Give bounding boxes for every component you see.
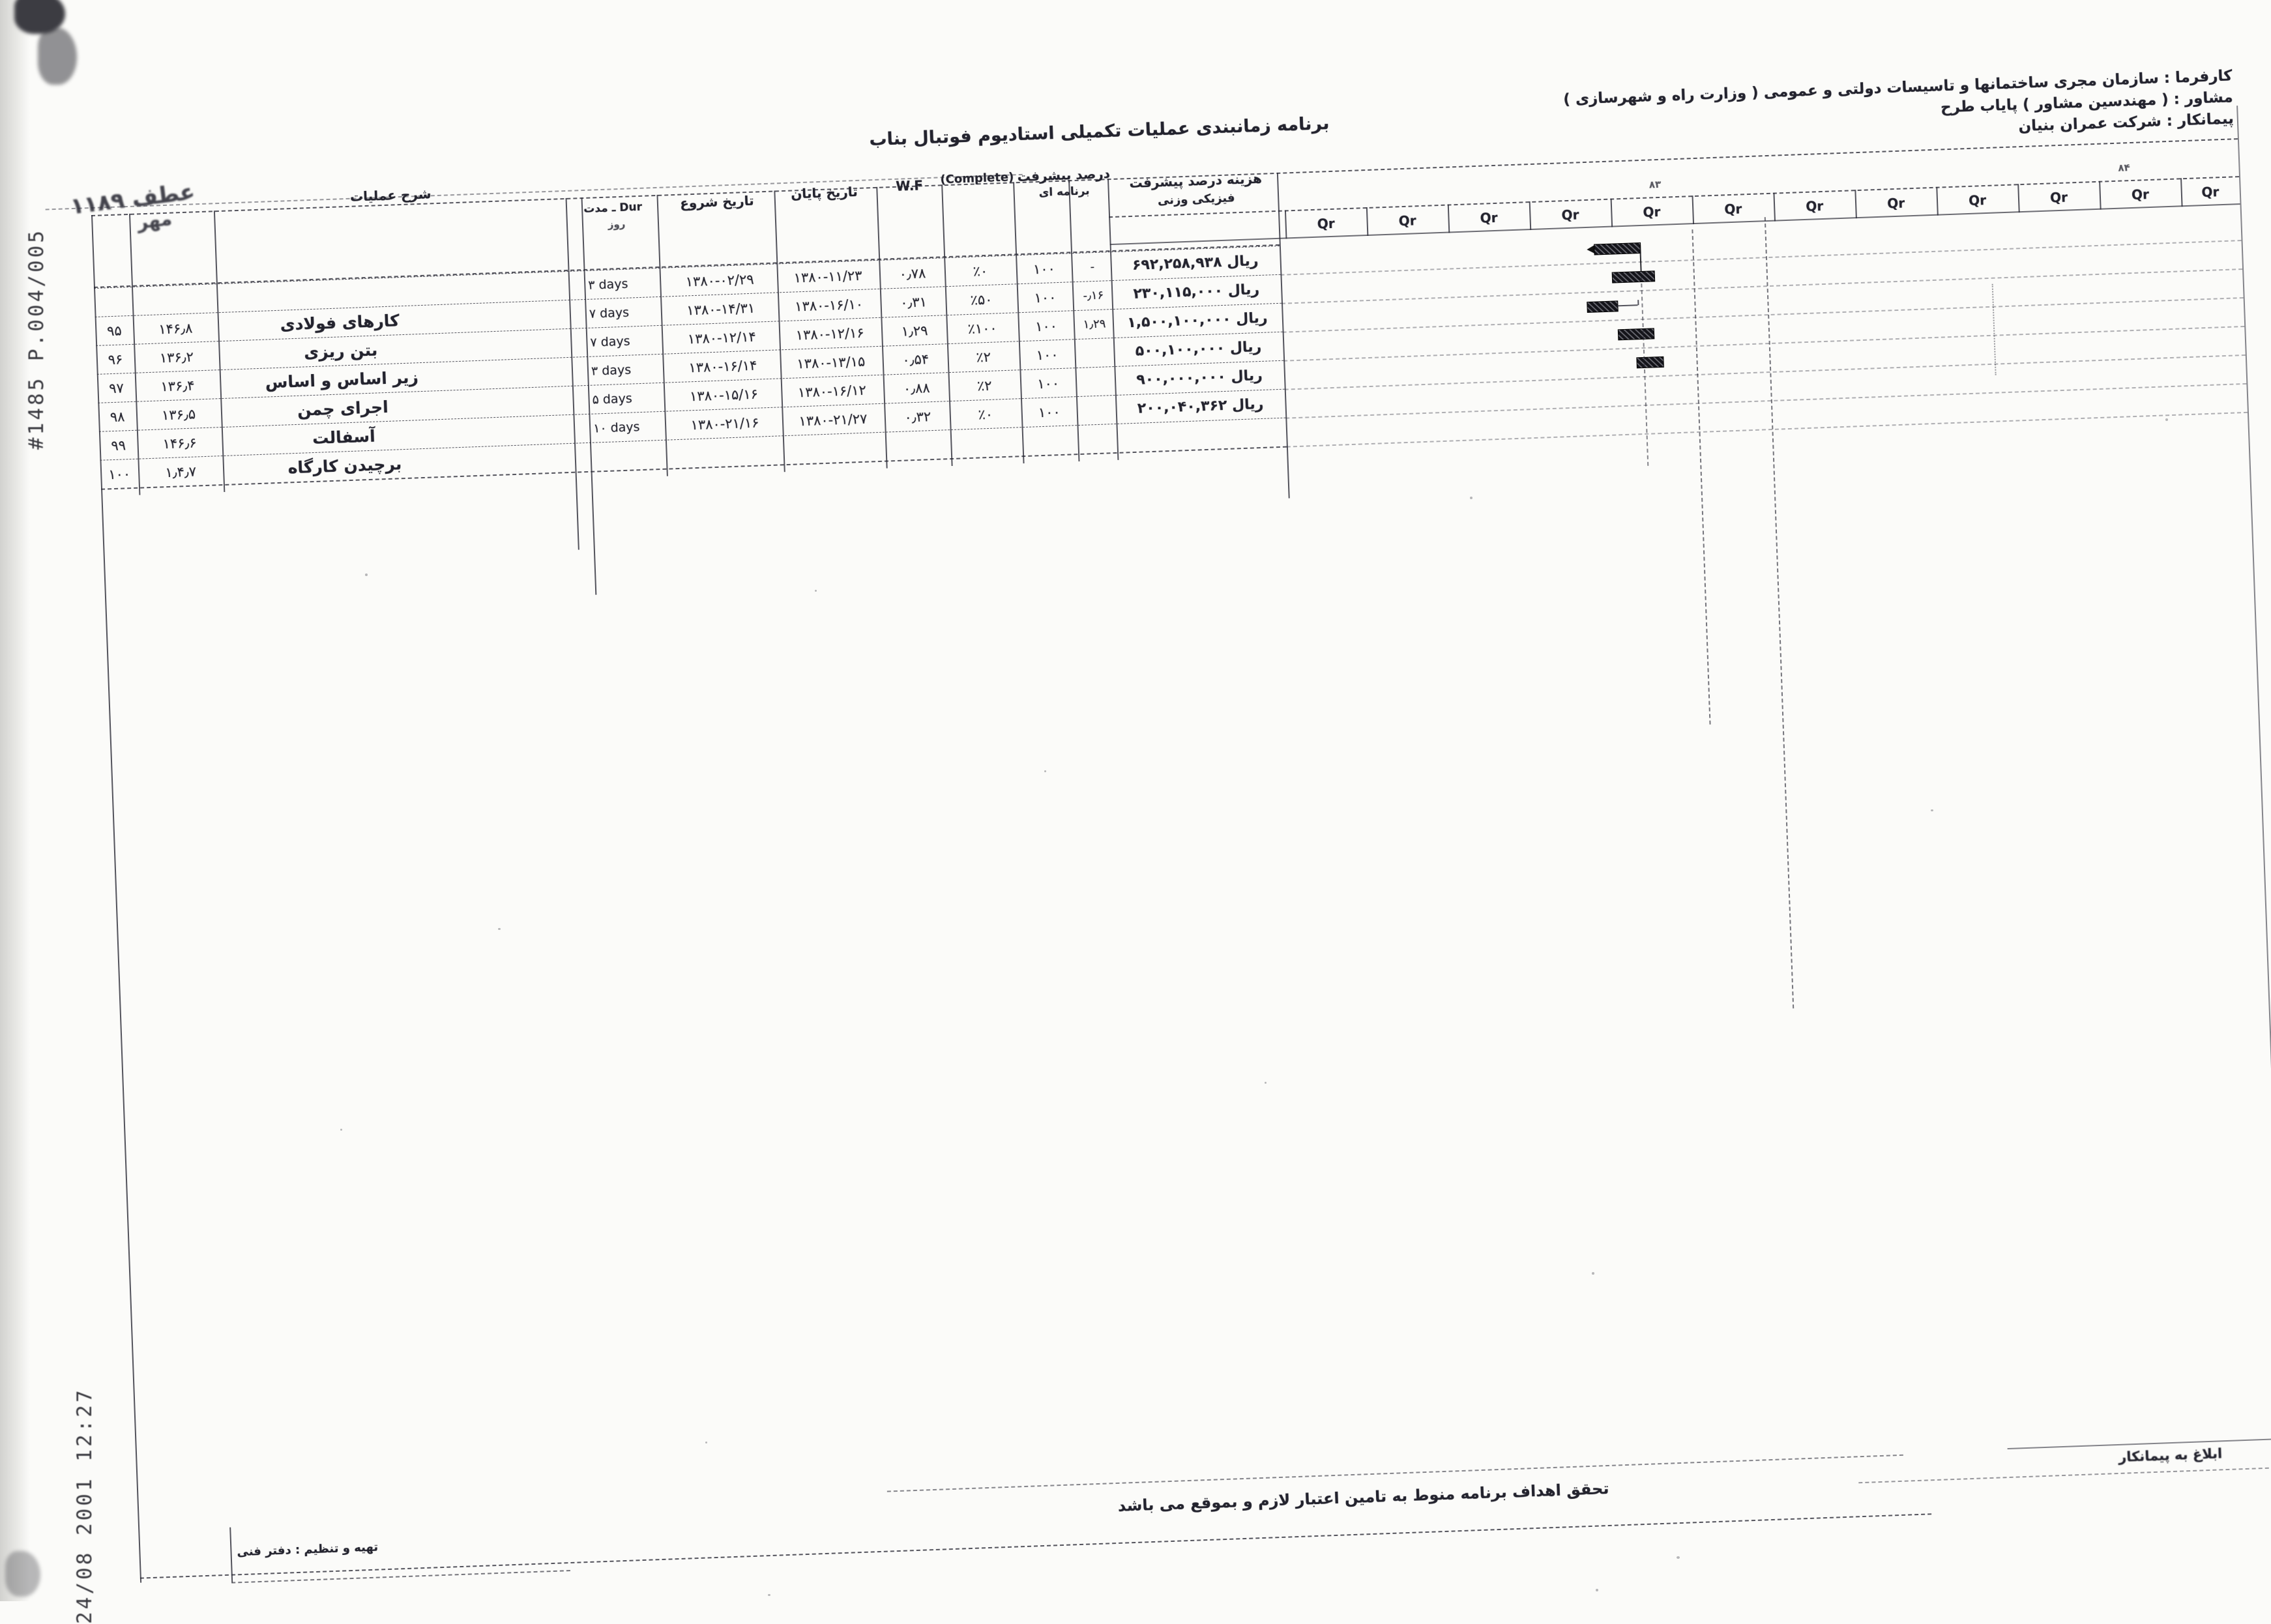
- cell-duration: [594, 441, 664, 472]
- cell-end-date: ۱۳۸۰-۱۳/۱۵: [782, 347, 879, 379]
- cell-deviation: -٫۱۶: [1072, 281, 1115, 311]
- gantt-bar: [1594, 242, 1641, 255]
- cell-start-date: ۱۳۸۰-۰۲/۲۹: [667, 265, 772, 297]
- cell-row-number: ۹۷: [98, 373, 135, 403]
- cell-complete: [952, 428, 1021, 459]
- cell-duration: ۳ days: [591, 355, 661, 386]
- cell-duration: ۵ days: [592, 383, 662, 414]
- cell-base: ۱۰۰: [1021, 340, 1074, 370]
- sheet-bottom-border: [140, 1513, 1931, 1578]
- colhead-cost-1: هزینه درصد پیشرفت: [1117, 170, 1274, 192]
- cell-end-date: ۱۳۸۰-۱۱/۲۳: [779, 261, 876, 293]
- cell-weight: ۰٫۷۸: [882, 258, 943, 289]
- gantt-quarter-label: Qr: [1854, 188, 1937, 218]
- cell-complete: ٪۵۰: [947, 284, 1016, 315]
- cell-complete: ٪۰: [946, 255, 1015, 287]
- status-dashed-line: [1765, 217, 1794, 1008]
- page-title: برنامه زمانبندی عملیات تکمیلی استادیوم ف…: [819, 111, 1380, 152]
- cell-row-number: ۱۰۰: [101, 459, 138, 489]
- gantt-quarter-label: Qr: [1692, 194, 1774, 224]
- colhead-complete: (Complete): [938, 170, 1017, 186]
- cell-complete: ٪۲: [950, 370, 1019, 401]
- row-extension-line: [1285, 383, 2246, 419]
- row-extension-line: [1282, 268, 2242, 304]
- colhead-duration: Dur ـ مدت: [570, 200, 656, 216]
- cell-end-date: ۱۳۸۰-۱۲/۱۶: [782, 318, 879, 350]
- fax-scan-page: { "fax": { "id": "#1485 P.004/005", "tim…: [0, 0, 2271, 1601]
- gantt-quarter-label: Qr: [2099, 179, 2181, 209]
- cell-base: ۱۰۰: [1021, 368, 1075, 399]
- cell-code: ۱۳۶٫۲: [135, 341, 218, 373]
- cell-deviation: [1077, 424, 1121, 454]
- cell-base: ۱۰۰: [1019, 311, 1073, 341]
- gantt-quarter-label: Qr: [1936, 185, 2018, 215]
- cell-weight: ۰٫۳۲: [887, 401, 948, 432]
- row-extension-line: [1283, 297, 2244, 333]
- cell-deviation: ۱٫۲۹: [1073, 310, 1116, 340]
- status-dotted-line: [1992, 284, 1997, 375]
- cell-deviation: [1076, 396, 1119, 426]
- row-extension-line: [1280, 240, 2241, 276]
- bar-start-arrow-icon: [1587, 246, 1594, 254]
- cell-start-date: ۱۳۸۰-۱۲/۱۴: [669, 322, 774, 355]
- gantt-quarter-label: Qr: [1448, 203, 1530, 233]
- cell-deviation: -: [1071, 252, 1114, 282]
- cell-complete: ٪۰: [951, 399, 1020, 430]
- gantt-quarter-label: Qr: [2180, 177, 2240, 207]
- cell-deviation: [1075, 367, 1118, 397]
- gantt-year-mark: ۸۴: [2118, 162, 2130, 174]
- colhead-description: شرح عملیات: [273, 183, 508, 207]
- cell-duration: ۷ days: [590, 326, 660, 357]
- cell-complete: ٪۲: [949, 341, 1018, 373]
- status-dashed-line: [1692, 229, 1710, 725]
- prepared-by: تهیه و تنظیم : دفتر فنی: [237, 1541, 378, 1559]
- project-parties-block: کارفرما : سازمان مجری ساختمانها و تاسیسا…: [1671, 65, 2234, 150]
- scan-speck: [1596, 1589, 1598, 1591]
- cell-weight: ۱٫۲۹: [884, 315, 945, 346]
- cell-end-date: ۱۳۸۰-۱۶/۱۲: [784, 375, 881, 407]
- gantt-connector: [1637, 300, 1639, 305]
- cell-start-date: ۱۳۸۰-۲۱/۱۶: [672, 408, 777, 441]
- cell-weight: ۰٫۵۴: [885, 344, 946, 375]
- cell-row-number: ۹۶: [97, 345, 134, 375]
- gantt-quarter-label: Qr: [2017, 182, 2100, 212]
- cell-end-date: ۱۳۸۰-۱۶/۱۰: [780, 289, 877, 321]
- cell-code: ۱٫۴٫۷: [139, 456, 222, 487]
- cell-code: ۱۳۶٫۴: [136, 370, 219, 401]
- cell-deviation: [1074, 338, 1117, 368]
- colhead-progress-1: درصد پیشرفت: [1014, 166, 1113, 184]
- cell-row-number: [95, 287, 132, 317]
- colhead-wf: W.F: [878, 177, 941, 194]
- gantt-bar: [1612, 270, 1656, 283]
- gantt-quarter-label: Qr: [1285, 209, 1367, 239]
- cell-duration: ۷ days: [589, 297, 659, 328]
- cell-end-date: [785, 433, 883, 465]
- cell-row-number: ۹۹: [100, 431, 137, 461]
- fax-page-id: #1485 P.004/005: [25, 228, 48, 450]
- cell-weight: ۰٫۸۸: [886, 373, 948, 403]
- gantt-connector: [1617, 304, 1637, 306]
- cell-base: ۱۰۰: [1023, 397, 1076, 428]
- gantt-quarter-label: Qr: [1366, 206, 1448, 236]
- colhead-progress-2: برنامه ای: [1015, 184, 1113, 200]
- colhead-cost-2: فیزیکی وزنی: [1118, 190, 1275, 209]
- cell-start-date: ۱۳۸۰-۱۴/۳۱: [668, 293, 773, 326]
- table-right-border: [2236, 106, 2271, 1082]
- gantt-bar: [1618, 328, 1655, 340]
- row-extension-line: [1283, 326, 2244, 362]
- cell-base: ۱۰۰: [1018, 254, 1071, 284]
- signoff-overline: [2008, 1438, 2271, 1449]
- gantt-bar: [1636, 356, 1664, 368]
- reference-stamp: عطف ۱۱۸۹ مهر: [69, 179, 199, 241]
- cell-code: ۱۴۶٫۸: [134, 313, 217, 344]
- cell-code: ۱۴۶٫۶: [138, 428, 221, 459]
- cell-row-number: ۹۸: [99, 402, 136, 432]
- fax-timestamp: 24/08 2001 12:27: [73, 1387, 96, 1624]
- row-extension-line: [1287, 412, 2248, 448]
- cell-base: ۱۰۰: [1019, 282, 1072, 313]
- cell-weight: ۰٫۳۱: [883, 287, 945, 317]
- cell-complete: ٪۱۰۰: [948, 313, 1017, 344]
- cell-base: [1024, 426, 1077, 456]
- gantt-quarter-label: Qr: [1529, 200, 1611, 230]
- signoff-label: ابلاغ به پیمانکار: [2118, 1445, 2223, 1465]
- cell-duration: ۳ days: [588, 268, 658, 300]
- cell-duration: ۱۰ days: [593, 412, 663, 443]
- colhead-days-unit: روز: [587, 218, 647, 231]
- cell-code: ۱۳۶٫۵: [137, 399, 220, 430]
- cell-start-date: ۱۳۸۰-۱۵/۱۶: [671, 379, 776, 412]
- schedule-sheet: کارفرما : سازمان مجری ساختمانها و تاسیسا…: [91, 138, 2271, 1622]
- gantt-quarter-label: Qr: [1773, 191, 1855, 221]
- gantt-quarter-label: Qr: [1611, 197, 1693, 227]
- cell-row-number: ۹۵: [96, 316, 133, 346]
- scan-artifact: [5, 1551, 40, 1597]
- status-dashed-line: [1641, 277, 1648, 466]
- cell-end-date: ۱۳۸۰-۲۱/۲۷: [784, 404, 881, 436]
- gantt-bar: [1587, 300, 1619, 313]
- cell-start-date: ۱۳۸۰-۱۶/۱۴: [670, 351, 775, 383]
- cell-code: [133, 284, 216, 315]
- scan-artifact: [38, 27, 77, 85]
- colhead-end-date: تاریخ پایان: [775, 183, 873, 202]
- cell-start-date: [673, 437, 778, 469]
- signoff-underline: [1858, 1467, 2271, 1483]
- footer-note: تحقق اهداف برنامه منوط به تامین اعتبار ل…: [1070, 1477, 1656, 1516]
- cell-weight: [888, 430, 950, 461]
- gantt-year-mark: ۸۳: [1649, 179, 1662, 191]
- row-extension-line: [1285, 355, 2246, 390]
- colhead-start-date: تاریخ شروع: [665, 192, 770, 212]
